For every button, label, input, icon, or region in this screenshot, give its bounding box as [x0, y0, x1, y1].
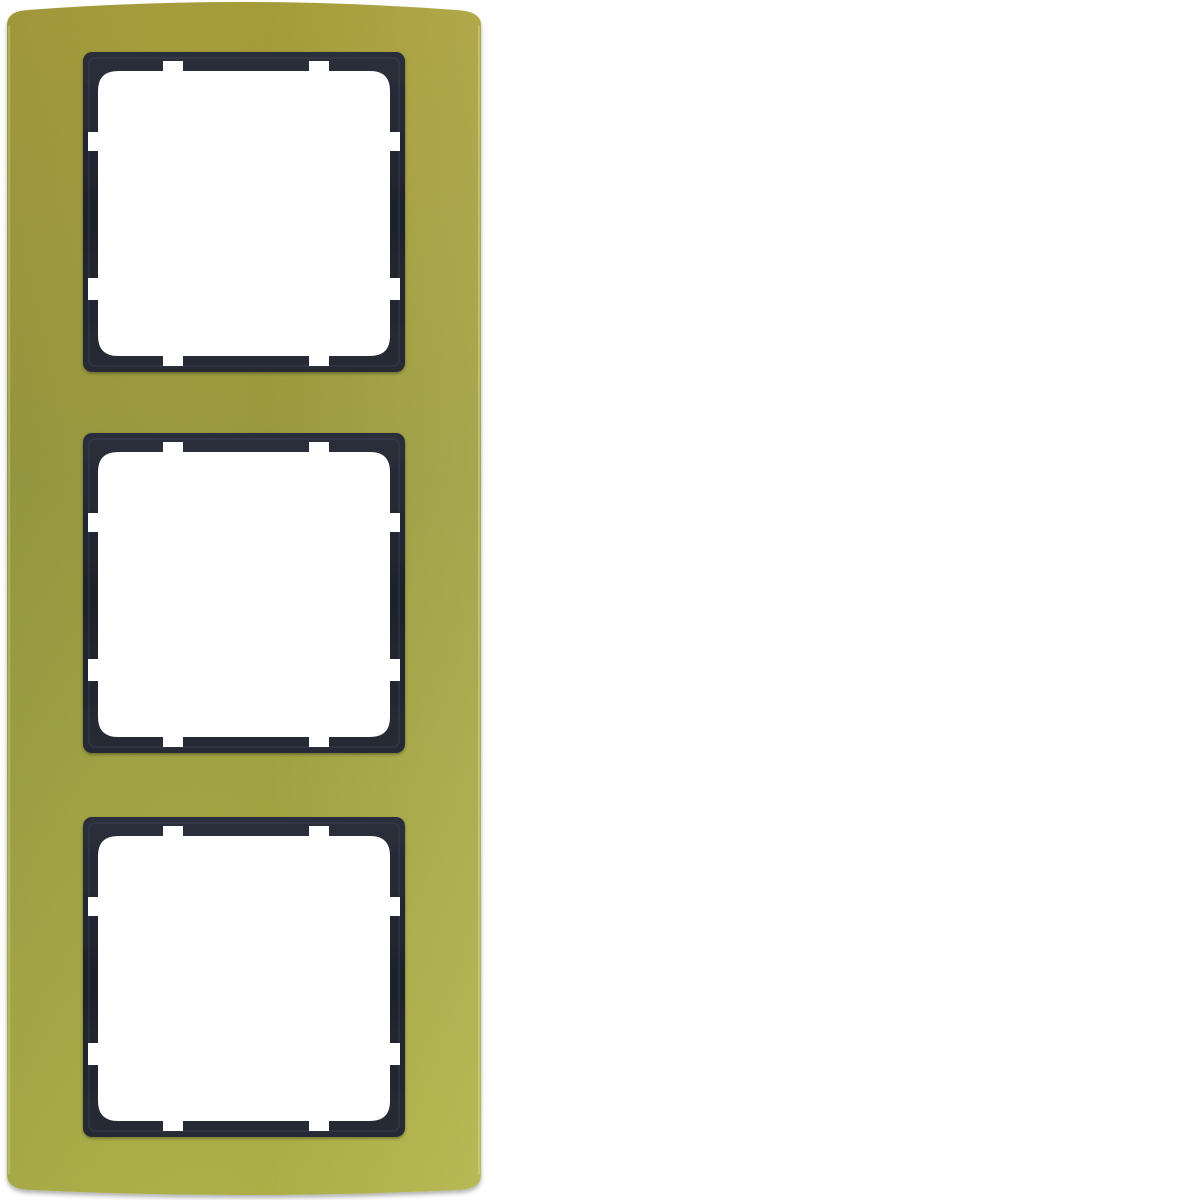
- frame-window-3: [83, 817, 405, 1137]
- cover-frame-graphic: [0, 0, 1200, 1200]
- frame-window-1: [83, 52, 405, 372]
- frame-window-2: [83, 433, 405, 753]
- product-photo: [0, 0, 1200, 1200]
